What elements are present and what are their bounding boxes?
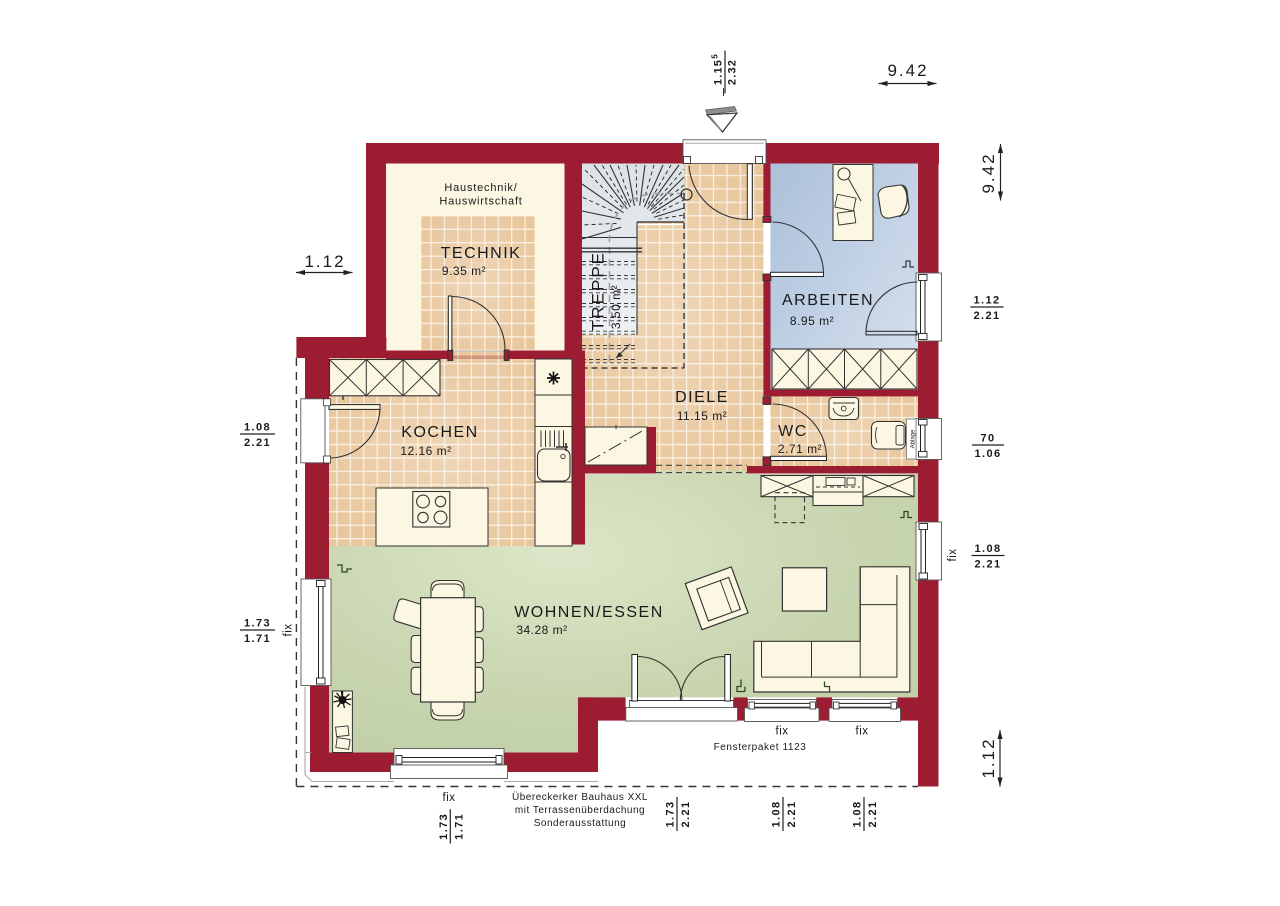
svg-text:WOHNEN/ESSEN: WOHNEN/ESSEN <box>514 604 664 621</box>
svg-text:mit Terrassenüberdachung: mit Terrassenüberdachung <box>515 805 645 816</box>
svg-text:5: 5 <box>711 54 720 59</box>
svg-text:1.12: 1.12 <box>304 252 345 271</box>
svg-text:ARBEITEN: ARBEITEN <box>782 292 874 309</box>
svg-text:2.21: 2.21 <box>680 800 692 827</box>
svg-text:fix: fix <box>443 792 456 804</box>
svg-text:70: 70 <box>980 433 995 445</box>
svg-text:1.12: 1.12 <box>979 737 998 778</box>
svg-text:1.08: 1.08 <box>974 543 1001 555</box>
svg-text:WC: WC <box>778 423 808 440</box>
svg-text:1.06: 1.06 <box>974 448 1001 460</box>
svg-text:fix: fix <box>947 549 959 562</box>
svg-text:2.21: 2.21 <box>244 437 271 449</box>
svg-text:9.42: 9.42 <box>979 152 998 193</box>
svg-text:KOCHEN: KOCHEN <box>401 424 478 441</box>
svg-text:2.21: 2.21 <box>974 559 1001 571</box>
svg-text:1.15: 1.15 <box>713 59 725 85</box>
svg-text:2.21: 2.21 <box>973 310 1000 322</box>
svg-text:Haustechnik/: Haustechnik/ <box>444 182 517 194</box>
svg-text:1.08: 1.08 <box>852 800 864 827</box>
svg-text:Hauswirtschaft: Hauswirtschaft <box>439 196 522 208</box>
svg-text:1.73: 1.73 <box>665 800 677 827</box>
svg-text:TECHNIK: TECHNIK <box>441 245 522 262</box>
svg-text:1.71: 1.71 <box>454 813 466 840</box>
svg-text:9.42: 9.42 <box>887 61 928 80</box>
svg-text:1.12: 1.12 <box>973 295 1000 307</box>
svg-text:fix: fix <box>283 624 295 637</box>
svg-text:1.73: 1.73 <box>244 618 271 630</box>
svg-text:1.73: 1.73 <box>438 813 450 840</box>
svg-text:34.28 m²: 34.28 m² <box>516 623 567 637</box>
svg-text:12.16 m²: 12.16 m² <box>400 444 451 458</box>
svg-text:3.50 m²: 3.50 m² <box>609 285 623 329</box>
svg-text:2.21: 2.21 <box>867 800 879 827</box>
svg-text:8.95 m²: 8.95 m² <box>790 314 834 328</box>
svg-text:fix: fix <box>776 726 789 738</box>
svg-text:2.71 m²: 2.71 m² <box>778 442 822 456</box>
svg-text:11.15 m²: 11.15 m² <box>677 409 727 423</box>
svg-text:Ablage: Ablage <box>911 429 917 448</box>
svg-text:fix: fix <box>856 726 869 738</box>
svg-text:2.32: 2.32 <box>727 59 739 85</box>
svg-text:DIELE: DIELE <box>675 389 729 406</box>
svg-text:Sonderausstattung: Sonderausstattung <box>534 818 626 829</box>
svg-text:TREPPE: TREPPE <box>588 251 607 331</box>
svg-text:2.21: 2.21 <box>786 800 798 827</box>
svg-text:1.08: 1.08 <box>244 422 271 434</box>
svg-text:1.71: 1.71 <box>244 633 271 645</box>
svg-text:1.08: 1.08 <box>771 800 783 827</box>
svg-text:9.35 m²: 9.35 m² <box>442 264 486 278</box>
svg-text:Fensterpaket 1123: Fensterpaket 1123 <box>714 742 807 753</box>
svg-text:Übereckerker Bauhaus XXL: Übereckerker Bauhaus XXL <box>512 791 648 803</box>
